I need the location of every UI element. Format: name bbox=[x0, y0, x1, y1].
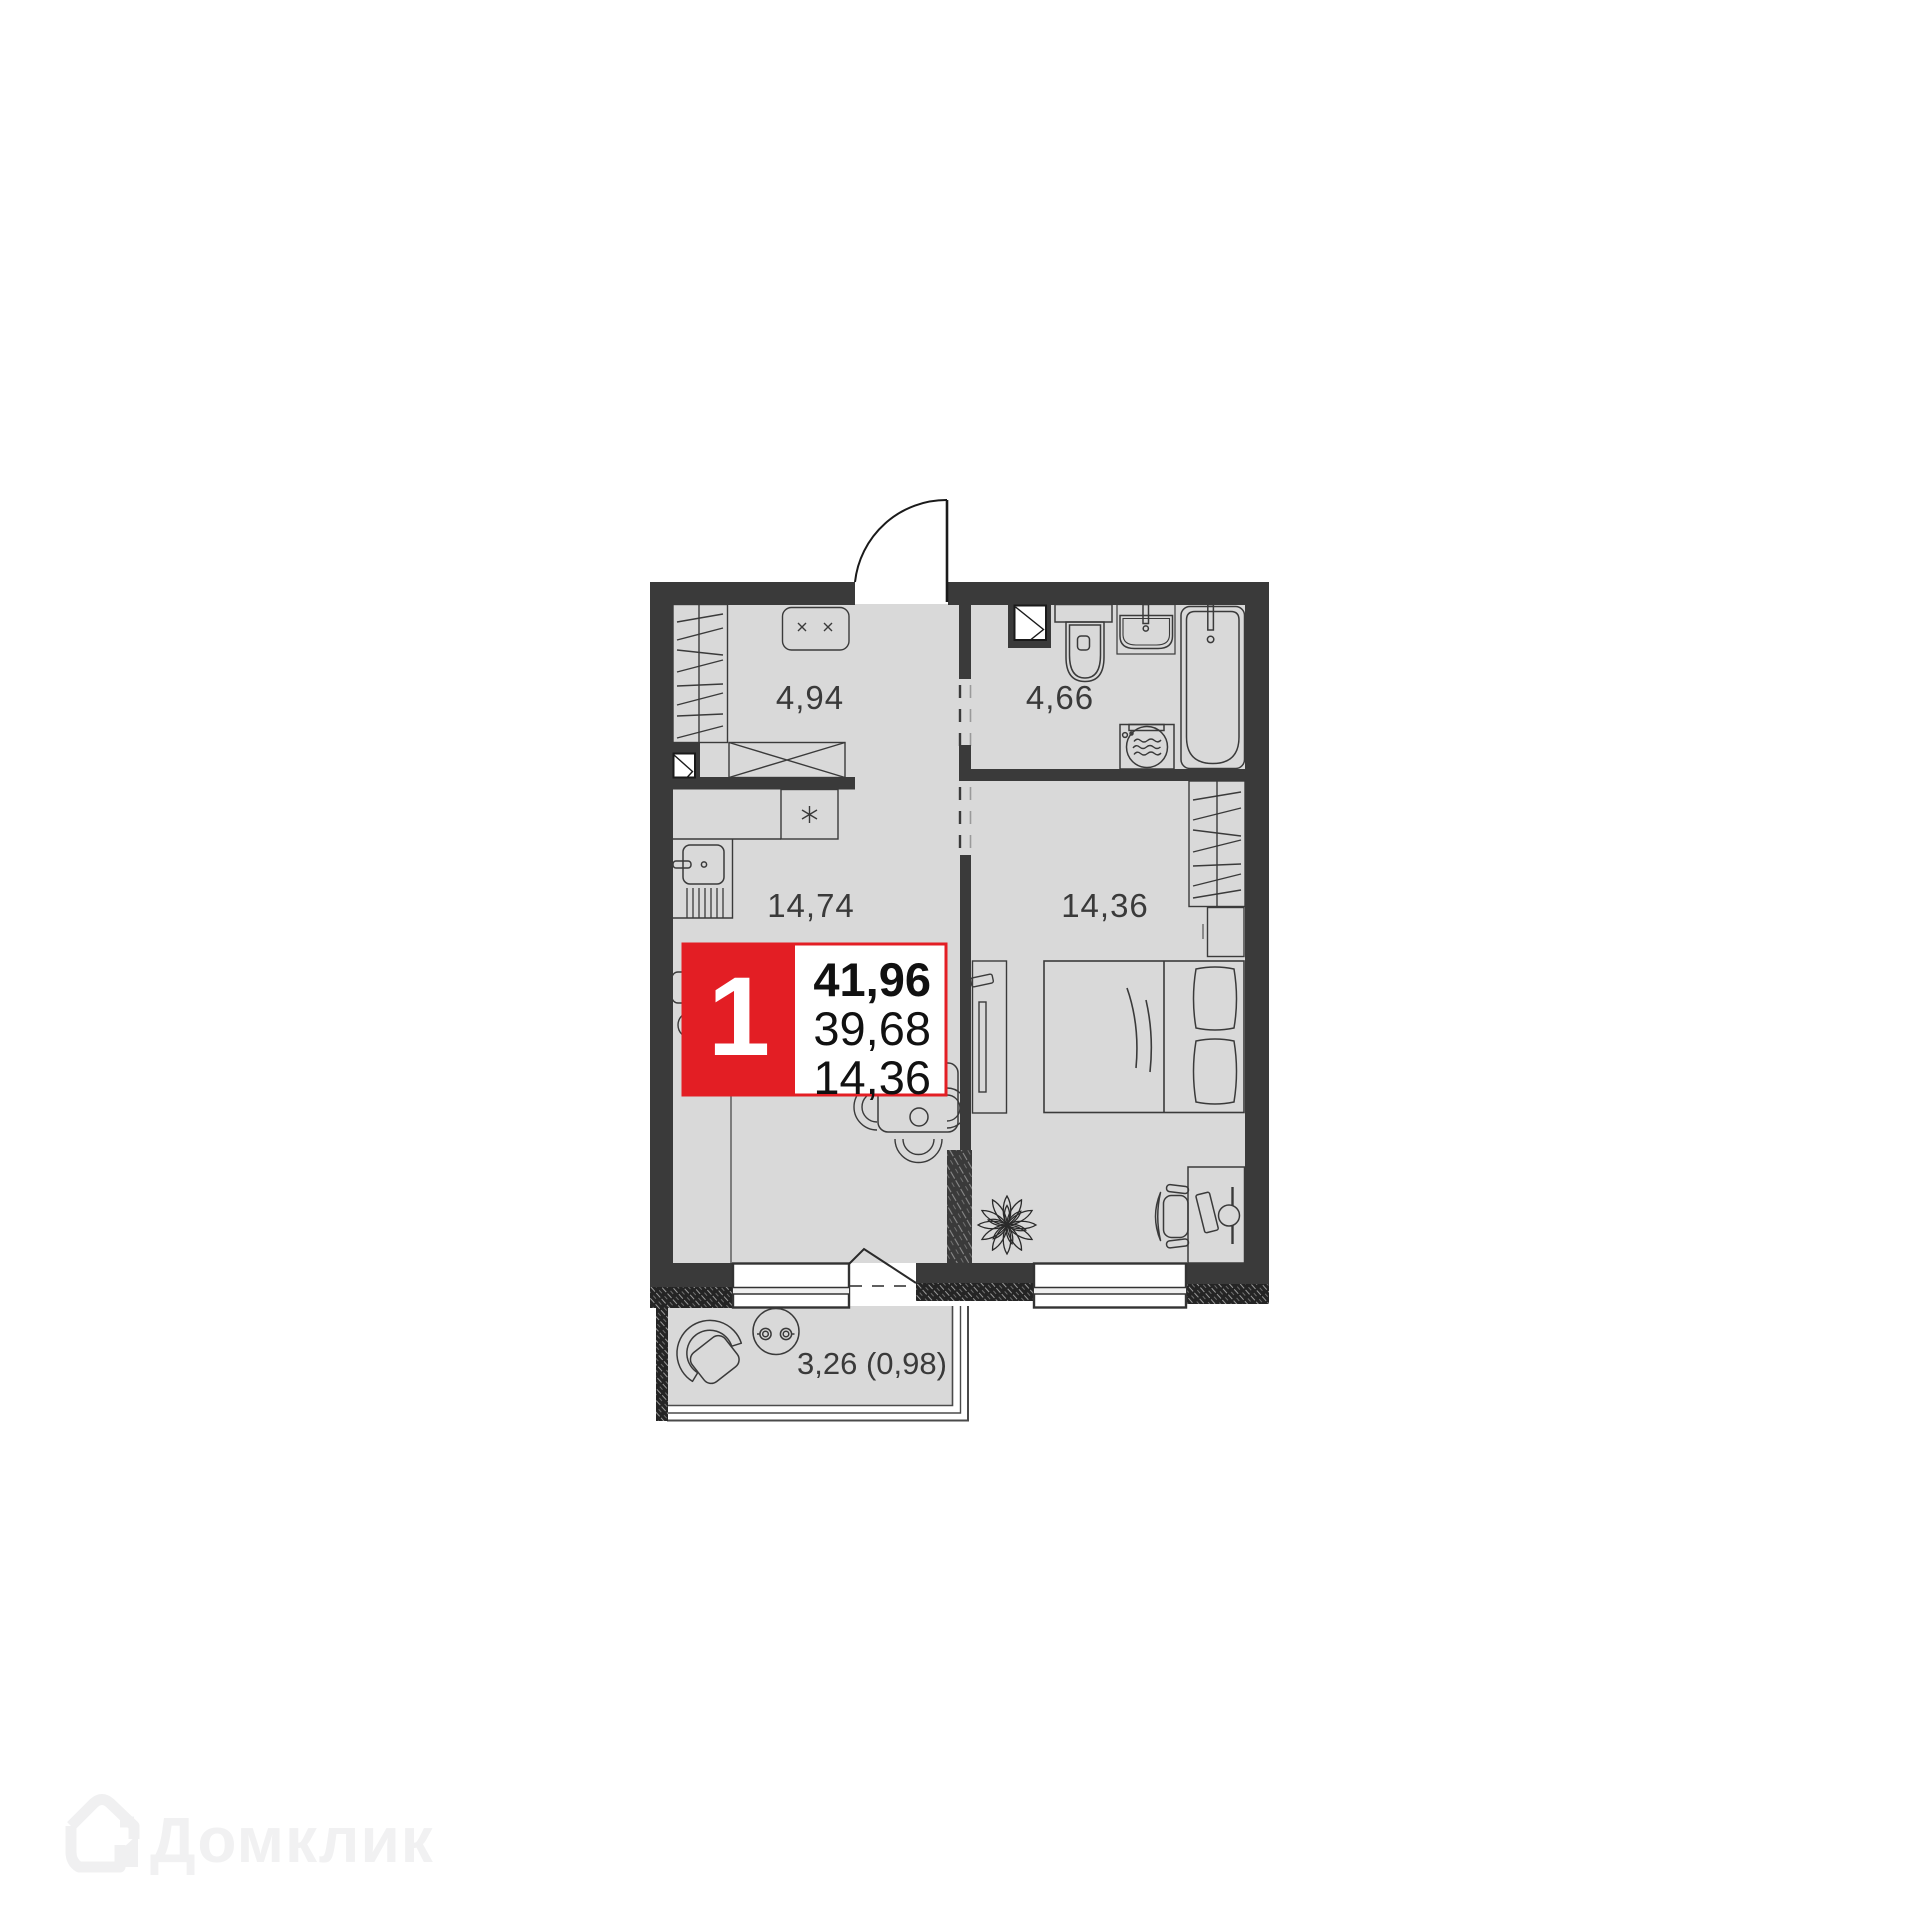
svg-text:14,74: 14,74 bbox=[767, 887, 855, 924]
svg-text:4,66: 4,66 bbox=[1026, 679, 1094, 716]
svg-text:41,96: 41,96 bbox=[813, 953, 931, 1006]
svg-text:14,36: 14,36 bbox=[1061, 887, 1149, 924]
svg-text:39,68: 39,68 bbox=[813, 1002, 931, 1055]
svg-text:3,26 (0,98): 3,26 (0,98) bbox=[797, 1346, 947, 1381]
svg-text:4,94: 4,94 bbox=[776, 679, 844, 716]
svg-text:Домклик: Домклик bbox=[150, 1804, 434, 1876]
svg-text:1: 1 bbox=[708, 954, 770, 1079]
svg-text:14,36: 14,36 bbox=[813, 1051, 931, 1104]
